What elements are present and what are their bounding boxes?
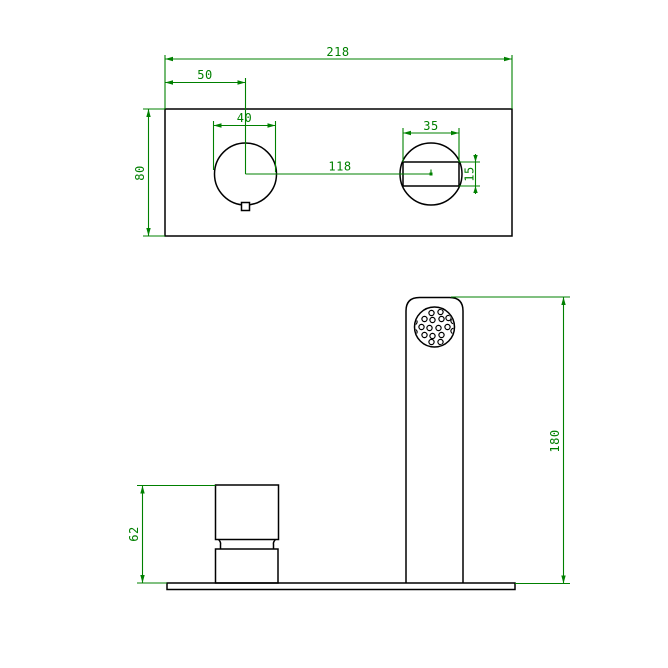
- handle-assembly: [216, 485, 279, 583]
- dim-arrow-bottom: [140, 575, 144, 583]
- spout-aerator: [412, 307, 456, 347]
- dim-arrow-right: [238, 80, 246, 84]
- dim-right-hole-width: 35: [403, 119, 459, 162]
- dim-spout-height: 180: [451, 297, 570, 584]
- dim-label-left-hole-offset: 50: [197, 68, 212, 82]
- dim-arrow-right: [504, 57, 512, 61]
- dim-overall-depth: 80: [133, 109, 165, 236]
- dim-label-handle-height: 62: [127, 526, 141, 541]
- dim-left-hole-offset: 50: [165, 68, 246, 174]
- dim-arrow-top: [140, 486, 144, 494]
- dim-label-hole-center-distance: 118: [328, 160, 351, 174]
- dim-left-hole-diameter: 40: [214, 111, 276, 172]
- dim-arrow-right: [451, 131, 459, 135]
- dim-arrow-left: [214, 123, 222, 127]
- dim-handle-height: 62: [127, 486, 216, 584]
- handle-hole-notch: [242, 203, 250, 211]
- baseplate-outline: [167, 583, 515, 590]
- handle-base-outline: [216, 549, 279, 583]
- front-view: 62 180: [127, 297, 570, 590]
- dim-arrow-left: [165, 57, 173, 61]
- dim-label-overall-width: 218: [326, 45, 349, 59]
- handle-knob-outline: [216, 485, 279, 540]
- dim-label-slot-height: 15: [463, 166, 477, 181]
- dim-label-right-hole-width: 35: [423, 119, 438, 133]
- dim-arrow-top: [146, 109, 150, 117]
- dim-slot-height: 15: [459, 154, 480, 194]
- dim-end-dot: [430, 173, 433, 176]
- handle-neck-outline: [219, 540, 276, 550]
- dim-overall-width: 218: [165, 45, 512, 109]
- dim-label-left-hole-diameter: 40: [237, 111, 252, 125]
- dim-arrow-left: [165, 80, 173, 84]
- technical-drawing-canvas: 218 50 40 118: [0, 0, 668, 668]
- dim-arrow-bottom: [146, 228, 150, 236]
- dim-arrow-bottom: [561, 576, 565, 584]
- top-view: 218 50 40 118: [133, 45, 512, 236]
- faucet-drawing-svg: 218 50 40 118: [0, 0, 668, 668]
- dim-arrow-top: [561, 297, 565, 305]
- spout-body-outline: [406, 298, 463, 584]
- dim-label-spout-height: 180: [548, 429, 562, 452]
- dim-arrow-left: [403, 131, 411, 135]
- dim-arrow-top: [473, 155, 477, 162]
- dim-label-overall-depth: 80: [133, 165, 147, 180]
- dim-arrow-bottom: [473, 186, 477, 193]
- dim-arrow-right: [268, 123, 276, 127]
